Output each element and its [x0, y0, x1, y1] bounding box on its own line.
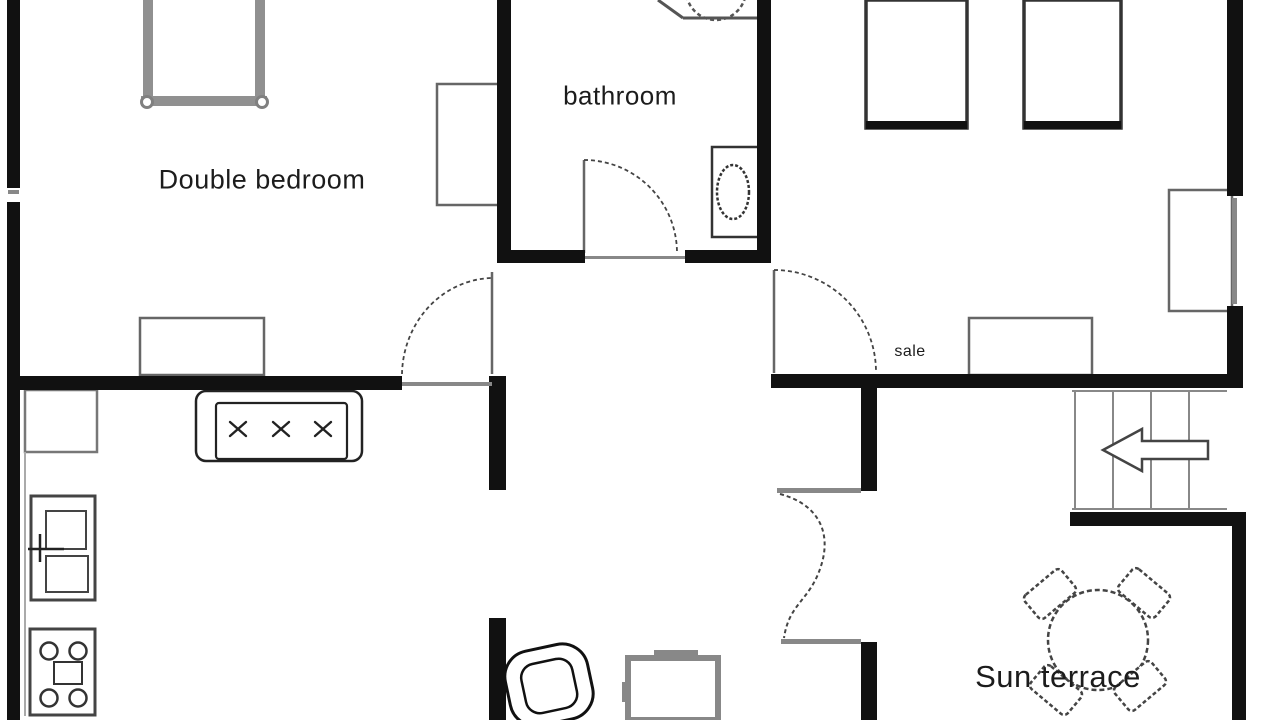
- double-bed-side-right: [255, 0, 265, 103]
- side-table: [622, 650, 718, 720]
- floor-plan: Double bedroom bathroom sale Sun terrace: [0, 0, 1280, 720]
- bedroom-door-swing: [402, 278, 492, 374]
- armchair-seat: [519, 656, 580, 716]
- stairs-direction-arrow: [1103, 429, 1208, 471]
- double-bedroom-label: Double bedroom: [159, 165, 366, 196]
- french-door-swing: [780, 494, 825, 638]
- doors: [402, 160, 876, 644]
- toilet-bowl: [717, 165, 749, 219]
- double-bed-footboard: [141, 96, 267, 106]
- stairs-south-wall: [1070, 512, 1235, 526]
- vanity-counter-corner: [658, 0, 683, 18]
- bathroom-south-wall-west: [497, 250, 585, 263]
- right-wall-upper: [1227, 0, 1243, 196]
- bed-knob-right: [257, 97, 268, 108]
- bedroom-door-threshold: [402, 382, 492, 386]
- double-bed: [141, 0, 268, 108]
- sale-label: sale: [894, 343, 925, 361]
- stove: [30, 629, 95, 715]
- bedroom-dresser: [140, 318, 264, 375]
- bathroom-door-swing: [584, 160, 677, 253]
- bedroom-south-wall: [7, 376, 402, 390]
- terrace-east-wall: [1232, 512, 1246, 720]
- twin-room-dresser: [969, 318, 1092, 375]
- bathroom-right-wall: [757, 0, 771, 263]
- french-door-top-leaf: [777, 488, 861, 493]
- bathroom-south-wall-east: [685, 250, 771, 263]
- side-table-top: [628, 658, 718, 720]
- fridge-upper-door: [46, 511, 86, 549]
- double-bed-side-left: [143, 0, 153, 103]
- bed-knob-left: [142, 97, 153, 108]
- fridge-lower-door: [46, 556, 88, 592]
- burner-1: [41, 643, 58, 660]
- terrace-west-wall-upper: [861, 388, 877, 491]
- french-door-bottom-leaf: [781, 639, 861, 644]
- burner-3: [41, 690, 58, 707]
- side-table-tab-left: [622, 682, 630, 702]
- hall-south-wall: [771, 374, 1240, 388]
- bathroom-label: bathroom: [563, 81, 677, 112]
- single-bed-left: [866, 0, 967, 129]
- left-wall-window: [8, 190, 19, 194]
- twin-room-desk: [1169, 190, 1232, 311]
- stove-center: [54, 662, 82, 684]
- fridge-freezer: [28, 496, 95, 600]
- right-wall-mid: [1227, 306, 1243, 388]
- left-wall-upper: [7, 0, 20, 188]
- sun-terrace-label: Sun terrace: [975, 659, 1141, 695]
- wardrobe: [437, 84, 500, 205]
- kitchen-counter: [25, 390, 97, 452]
- hall-west-wall-lower: [489, 618, 506, 720]
- left-wall-lower: [7, 202, 20, 720]
- single-bed-right: [1024, 0, 1121, 129]
- hall-west-wall-upper: [489, 376, 506, 490]
- single-bed-right-footboard: [1024, 121, 1121, 129]
- single-bed-left-frame: [866, 0, 967, 128]
- single-bed-left-footboard: [866, 121, 967, 129]
- single-bed-right-frame: [1024, 0, 1121, 128]
- corner-basin: [658, 0, 757, 20]
- burner-2: [70, 643, 87, 660]
- burner-4: [70, 690, 87, 707]
- armchair: [500, 639, 598, 720]
- sofa: [196, 391, 362, 461]
- side-table-tab-top: [654, 650, 698, 658]
- right-wall-window: [1232, 198, 1237, 304]
- bedroom-bathroom-wall: [497, 0, 511, 263]
- twin-room-door-swing: [774, 270, 876, 372]
- terrace-west-wall-lower: [861, 642, 877, 720]
- bathroom-door-threshold: [585, 256, 685, 259]
